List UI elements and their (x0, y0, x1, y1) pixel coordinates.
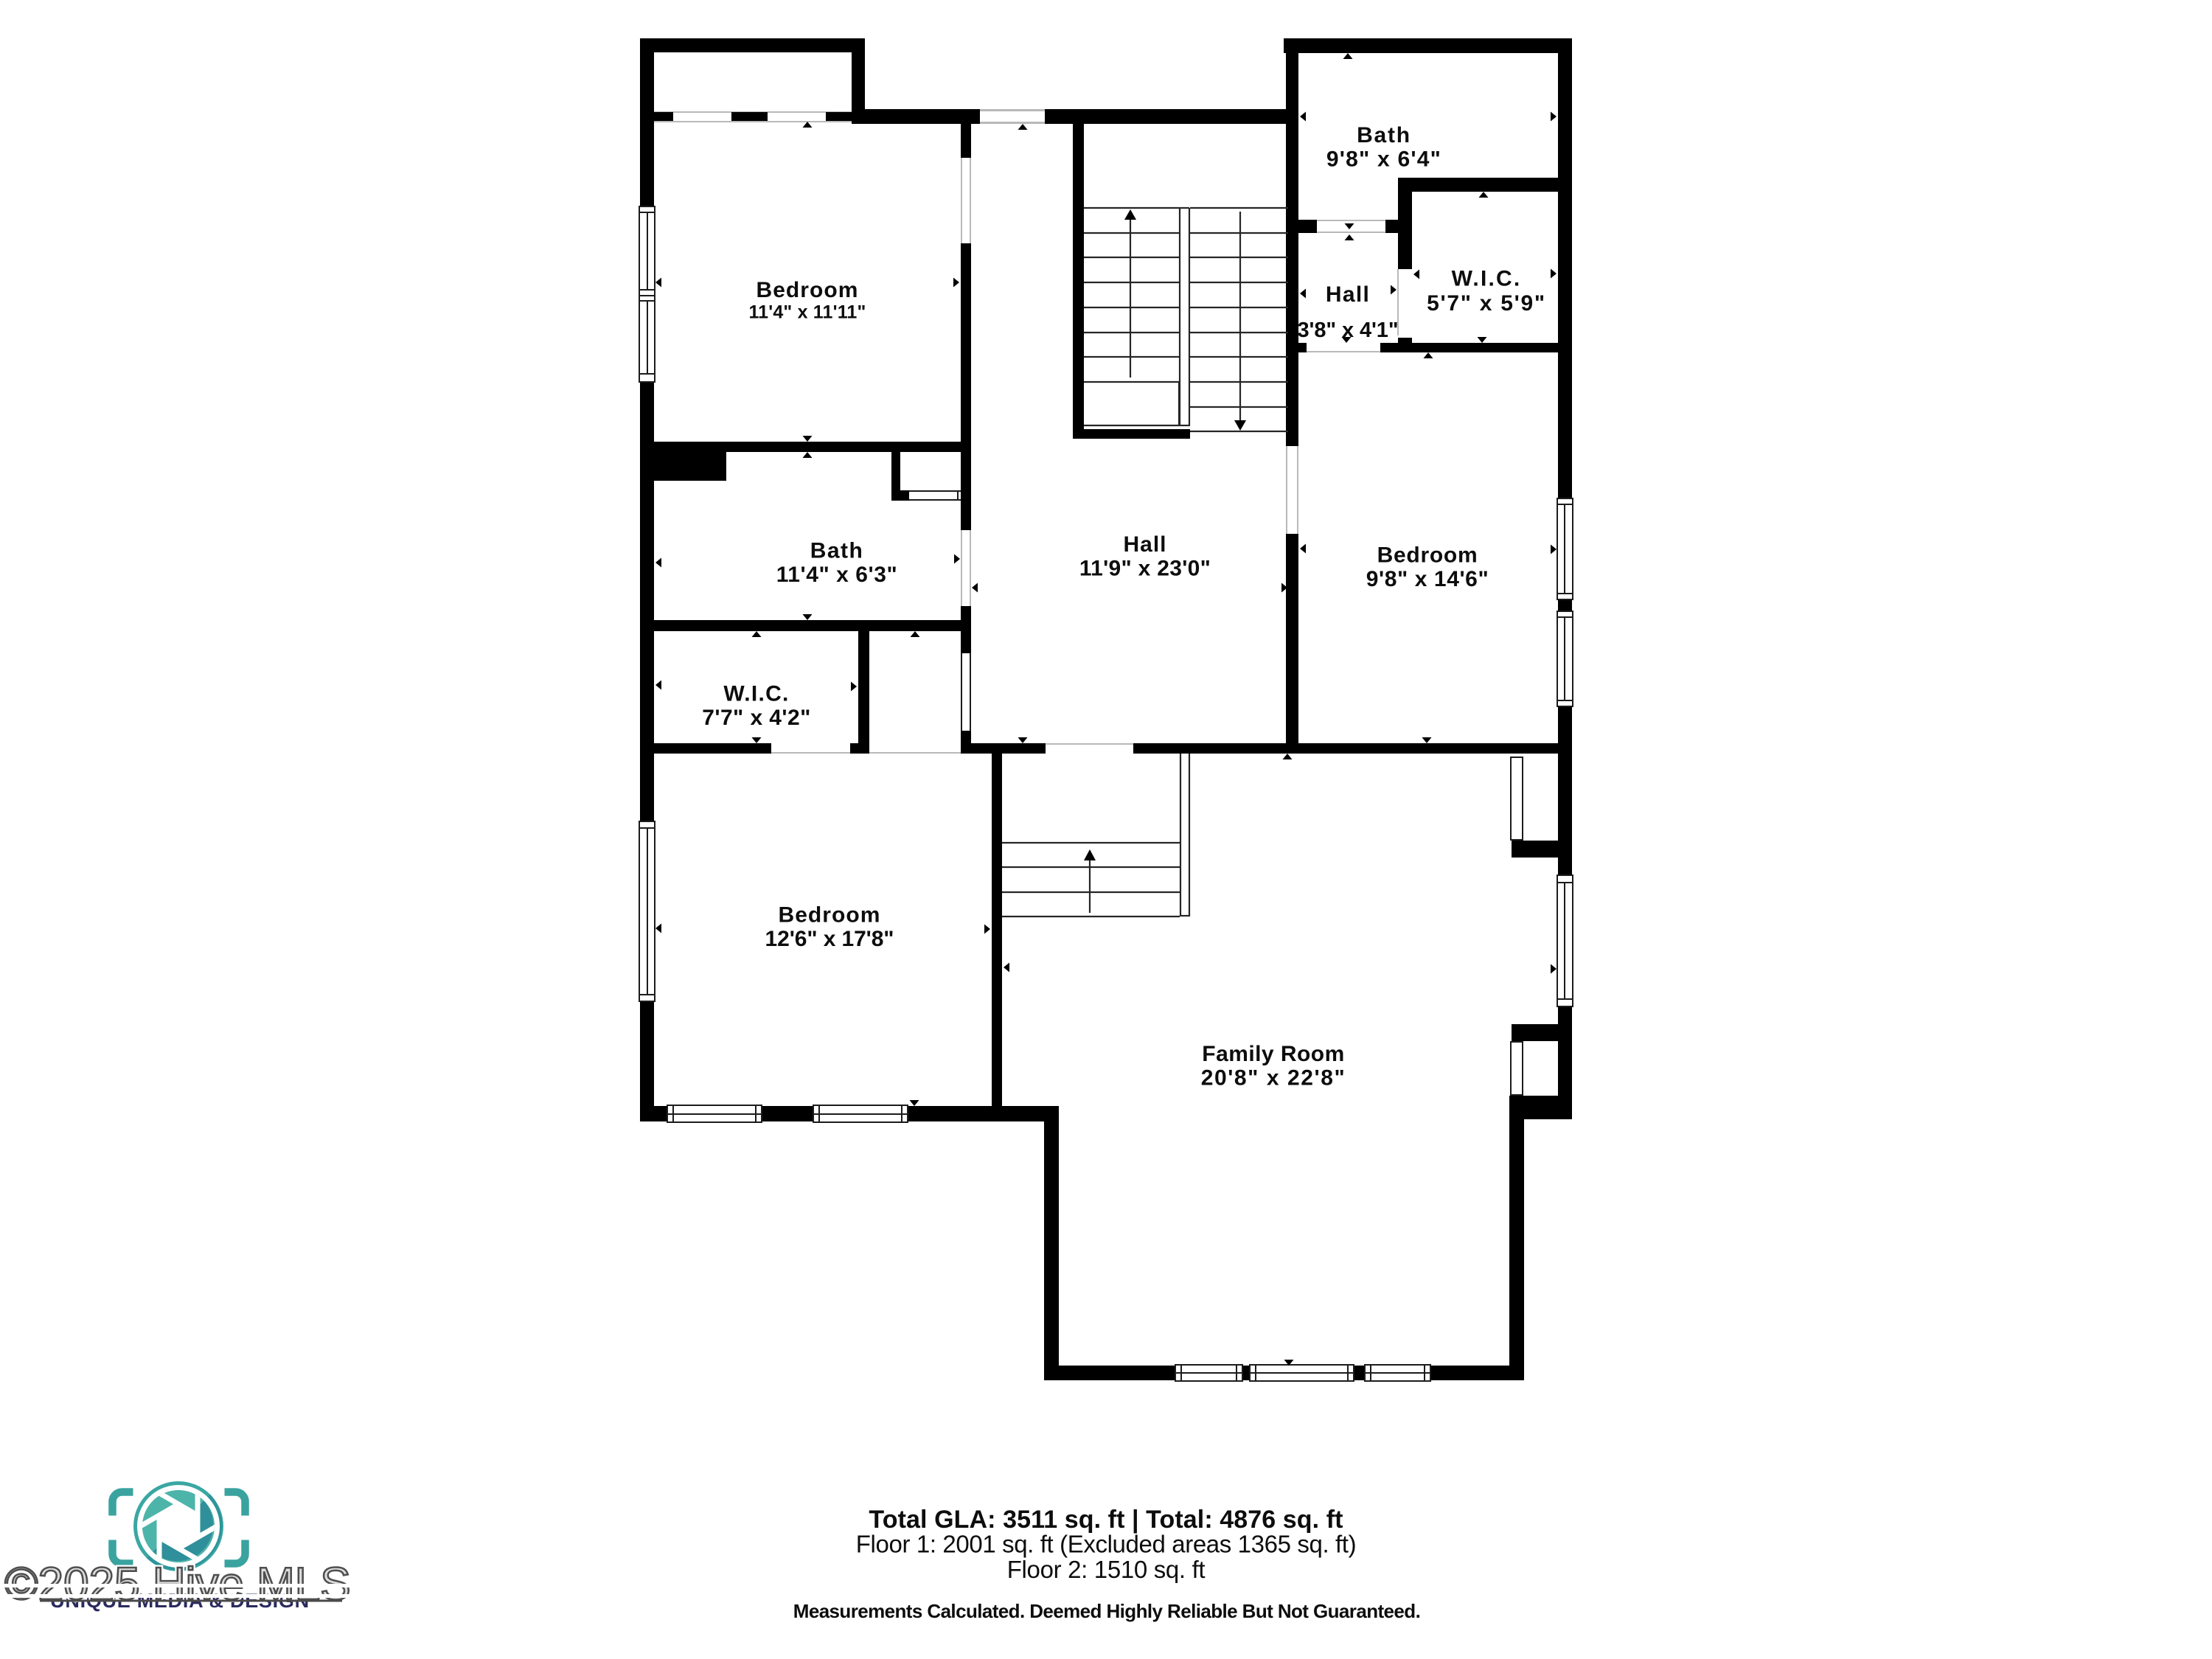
svg-text:7'7" x 4'2": 7'7" x 4'2" (702, 706, 810, 730)
svg-text:Bath: Bath (1357, 123, 1411, 147)
svg-text:Bath: Bath (810, 538, 863, 563)
svg-text:11'4" x 11'11": 11'4" x 11'11" (748, 302, 866, 323)
svg-text:Family Room: Family Room (1202, 1042, 1344, 1066)
svg-text:W.I.C.: W.I.C. (1452, 267, 1522, 291)
svg-text:9'8" x 6'4": 9'8" x 6'4" (1326, 147, 1441, 171)
svg-text:3'8" x 4'1": 3'8" x 4'1" (1298, 319, 1399, 342)
svg-text:Floor 1: 2001 sq. ft (Excluded: Floor 1: 2001 sq. ft (Excluded areas 136… (856, 1530, 1356, 1557)
svg-text:Bedroom: Bedroom (778, 902, 880, 927)
svg-text:11'9" x 23'0": 11'9" x 23'0" (1079, 556, 1211, 580)
svg-text:9'8" x 14'6": 9'8" x 14'6" (1366, 567, 1489, 591)
svg-text:12'6" x 17'8": 12'6" x 17'8" (765, 927, 894, 951)
svg-text:Measurements Calculated. Deeme: Measurements Calculated. Deemed Highly R… (793, 1600, 1420, 1622)
svg-text:11'4" x 6'3": 11'4" x 6'3" (776, 563, 898, 587)
svg-text:Hall: Hall (1326, 282, 1370, 307)
svg-text:20'8" x 22'8": 20'8" x 22'8" (1201, 1065, 1346, 1090)
svg-text:Hall: Hall (1124, 532, 1167, 557)
svg-text:Bedroom: Bedroom (756, 278, 858, 302)
svg-text:Floor 2: 1510 sq. ft: Floor 2: 1510 sq. ft (1007, 1556, 1206, 1583)
svg-text:W.I.C.: W.I.C. (723, 681, 789, 706)
svg-text:5'7" x 5'9": 5'7" x 5'9" (1427, 291, 1546, 316)
svg-text:Bedroom: Bedroom (1377, 543, 1478, 567)
svg-text:Total GLA: 3511 sq. ft | Total: Total GLA: 3511 sq. ft | Total: 4876 sq.… (869, 1506, 1343, 1534)
